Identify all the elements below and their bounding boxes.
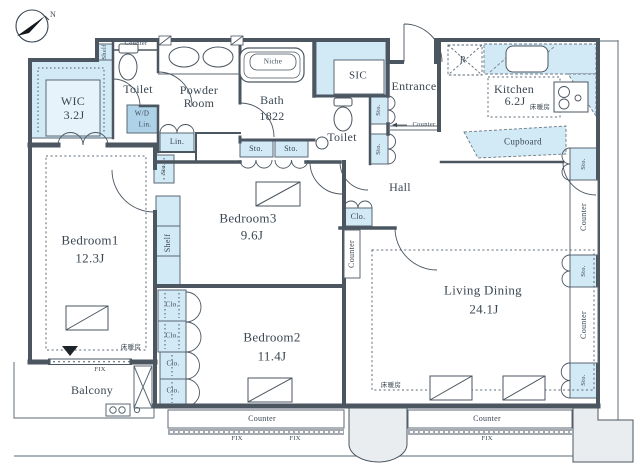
label-sto-right-1: Sto. — [581, 158, 588, 170]
label-clo-b2-3: Clo. — [166, 361, 179, 368]
label-clo-b2-2: Clo. — [165, 333, 178, 340]
stove — [554, 82, 588, 112]
label-lin: Lin. — [170, 138, 184, 146]
hall-living-door — [395, 228, 437, 270]
label-wd-lin: Lin. — [139, 122, 152, 129]
label-hall: Hall — [389, 181, 411, 193]
label-sic: SIC — [349, 71, 367, 82]
symbol-bedroom2 — [248, 378, 292, 402]
label-bedroom2-size: 11.4J — [258, 350, 287, 363]
bath-sto-doors — [240, 160, 308, 168]
shelf-cell-b3-1 — [156, 196, 180, 226]
label-toilet-b: Toilet — [327, 131, 357, 143]
label-entrance: Entrance — [391, 80, 436, 92]
toilet-b-sink — [316, 137, 328, 149]
label-counter-bottom-2: Counter — [473, 415, 501, 423]
label-shelf-wic: Shelf — [102, 44, 109, 59]
label-clo-b2-1: Clo. — [165, 302, 178, 309]
label-counter-bottom-1: Counter — [248, 415, 276, 423]
label-sto-entrance-2: Sto. — [376, 143, 383, 155]
label-powder-line2: Room — [184, 97, 215, 109]
triangle-marker — [62, 346, 78, 356]
label-sto-bath-1: Sto. — [249, 145, 263, 153]
label-cupboard: Cupboard — [504, 138, 542, 147]
label-sto-right-2: Sto. — [581, 265, 588, 277]
kitchen-sink — [506, 46, 548, 72]
label-clo-hall: Clo. — [351, 213, 366, 221]
label-wic-name: WIC — [61, 95, 85, 107]
toilet-a-bowl — [119, 54, 137, 80]
label-sto-below-lin: Sto. — [161, 163, 168, 175]
powder-sink-1 — [169, 47, 199, 67]
label-kitchen-size: 6.2J — [505, 95, 526, 107]
right-sto-doors — [561, 148, 570, 398]
label-niche: Niche — [264, 59, 282, 66]
label-sto-right-3: Sto. — [581, 374, 588, 386]
label-bedroom1-size: 12.3J — [75, 252, 104, 265]
label-living-size: 24.1J — [469, 303, 498, 316]
label-counter-desk: Counter — [348, 240, 356, 268]
bedroom1-door — [112, 170, 154, 212]
label-counter-top: Counter — [124, 41, 147, 48]
bedroom2-clo-doors — [186, 292, 201, 406]
symbol-living-1 — [430, 376, 472, 400]
lin-doors — [160, 125, 194, 134]
powder-sink-2 — [203, 47, 233, 67]
label-toilet-a: Toilet — [123, 83, 153, 95]
stove-burner-2 — [559, 99, 569, 109]
label-shelf-bedroom3: Shelf — [164, 234, 172, 252]
label-counter-entrance: Counter — [412, 122, 435, 129]
label-counter-right-2: Counter — [580, 311, 588, 339]
label-fridge: R — [460, 56, 466, 65]
label-wd: W/D — [135, 111, 150, 118]
label-bedroom3-size: 9.6J — [241, 229, 264, 242]
label-fix-bottom-3: FIX — [481, 436, 492, 443]
label-sto-entrance-1: Sto. — [376, 104, 383, 116]
label-sto-bath-2: Sto. — [284, 145, 298, 153]
hall-clo-doors — [344, 201, 372, 208]
label-fix-bottom-2: FIX — [289, 436, 300, 443]
pillar-center — [349, 406, 407, 462]
toilet-b-tank — [334, 98, 352, 106]
label-powder-line1: Powder — [180, 84, 218, 96]
symbol-bedroom1 — [66, 306, 108, 330]
thin-lines — [158, 74, 598, 428]
label-floor-heating-living: 床暖房 — [381, 383, 401, 390]
bedroom3-door — [310, 162, 342, 194]
toilet-b-bowl — [334, 107, 352, 131]
floor-heating-living — [372, 250, 594, 390]
floor-plan: N Counter Shelf WIC 3.2J Toilet Powder R… — [0, 0, 640, 473]
pillar-right — [573, 406, 633, 462]
label-fix-bottom-1: FIX — [231, 436, 242, 443]
shelf-cell-b3-3 — [156, 256, 180, 286]
label-bath-name: Bath — [260, 94, 284, 106]
label-bedroom2-name: Bedroom2 — [243, 331, 300, 344]
label-bedroom3-name: Bedroom3 — [219, 212, 276, 225]
label-wic-size: 3.2J — [64, 109, 85, 121]
label-living-name: Living Dining — [444, 284, 522, 297]
label-balcony: Balcony — [71, 384, 113, 396]
label-floor-heating-kitchen: 床暖房 — [530, 105, 550, 112]
label-bedroom1-name: Bedroom1 — [61, 234, 118, 247]
label-floor-heating-bedroom1: 床暖房 — [121, 345, 141, 352]
label-fix-bedroom1: FIX — [94, 367, 105, 374]
stove-burner-3 — [575, 95, 581, 101]
label-bath-size: 1822 — [259, 110, 284, 122]
label-clo-b2-4: Clo. — [166, 388, 179, 395]
north-label: N — [50, 11, 56, 19]
symbol-bedroom3 — [256, 182, 300, 206]
north-compass — [16, 10, 49, 42]
label-counter-right-1: Counter — [580, 203, 588, 231]
stove-burner-1 — [559, 87, 570, 98]
symbol-living-2 — [503, 376, 545, 400]
